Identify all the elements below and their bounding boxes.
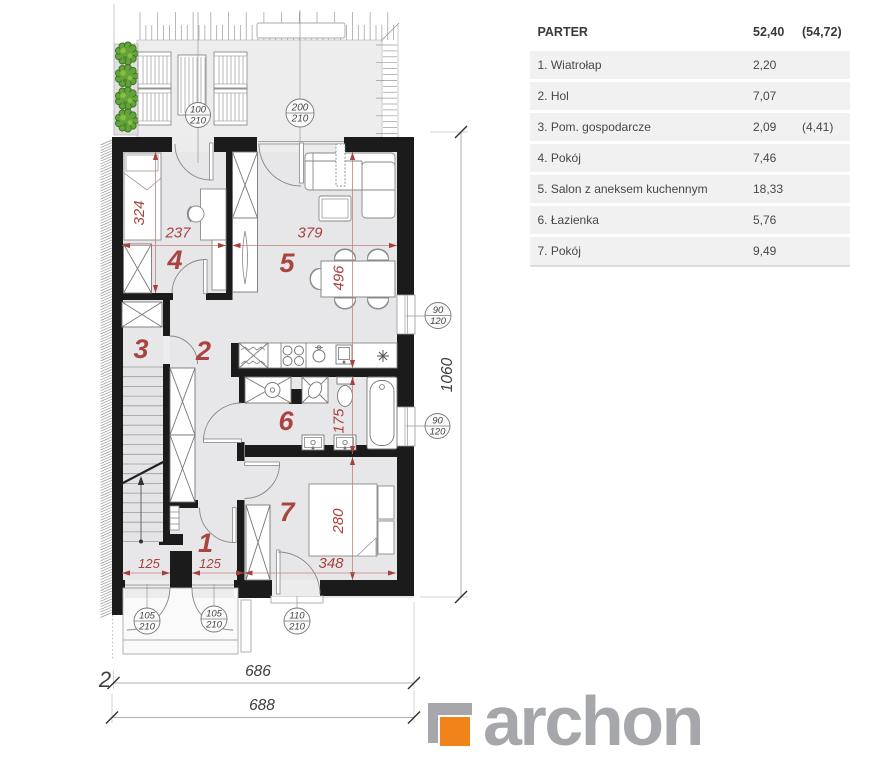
svg-text:4: 4	[166, 245, 182, 275]
svg-text:175: 175	[331, 408, 348, 434]
svg-text:280: 280	[330, 508, 347, 535]
svg-text:324: 324	[131, 200, 148, 225]
svg-text:1: 1	[198, 528, 213, 558]
svg-text:120: 120	[430, 427, 447, 438]
svg-text:120: 120	[430, 316, 447, 327]
svg-text:688: 688	[249, 697, 275, 714]
svg-text:379: 379	[297, 225, 323, 242]
svg-text:3: 3	[133, 334, 148, 364]
svg-text:105: 105	[139, 611, 156, 622]
svg-text:125: 125	[138, 556, 160, 571]
svg-text:686: 686	[245, 663, 271, 680]
svg-text:90: 90	[432, 416, 443, 427]
svg-text:210: 210	[189, 116, 207, 127]
svg-text:6: 6	[278, 406, 294, 436]
svg-text:125: 125	[199, 556, 221, 571]
svg-text:496: 496	[331, 265, 348, 291]
svg-text:210: 210	[138, 622, 156, 633]
svg-text:2: 2	[195, 336, 211, 366]
svg-text:2: 2	[98, 667, 111, 692]
svg-text:210: 210	[205, 620, 223, 631]
svg-text:5: 5	[279, 248, 295, 278]
svg-text:archon: archon	[483, 682, 702, 760]
svg-text:105: 105	[206, 609, 223, 620]
svg-text:200: 200	[291, 103, 309, 114]
svg-text:90: 90	[433, 305, 444, 316]
svg-text:237: 237	[164, 225, 191, 242]
svg-text:100: 100	[190, 105, 207, 116]
svg-text:1060: 1060	[439, 357, 456, 392]
svg-text:110: 110	[289, 611, 305, 622]
svg-text:210: 210	[291, 114, 309, 125]
svg-text:348: 348	[318, 555, 344, 572]
svg-text:210: 210	[288, 622, 306, 633]
svg-text:7: 7	[279, 497, 296, 527]
